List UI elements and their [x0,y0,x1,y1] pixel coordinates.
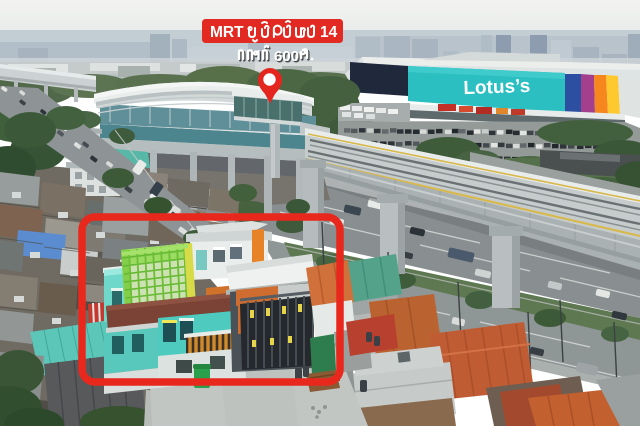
svg-text:Lotus’s: Lotus’s [463,76,531,99]
svg-text:600: 600 [274,48,299,65]
svg-text:14: 14 [320,24,338,41]
svg-text:MRT: MRT [210,24,244,41]
